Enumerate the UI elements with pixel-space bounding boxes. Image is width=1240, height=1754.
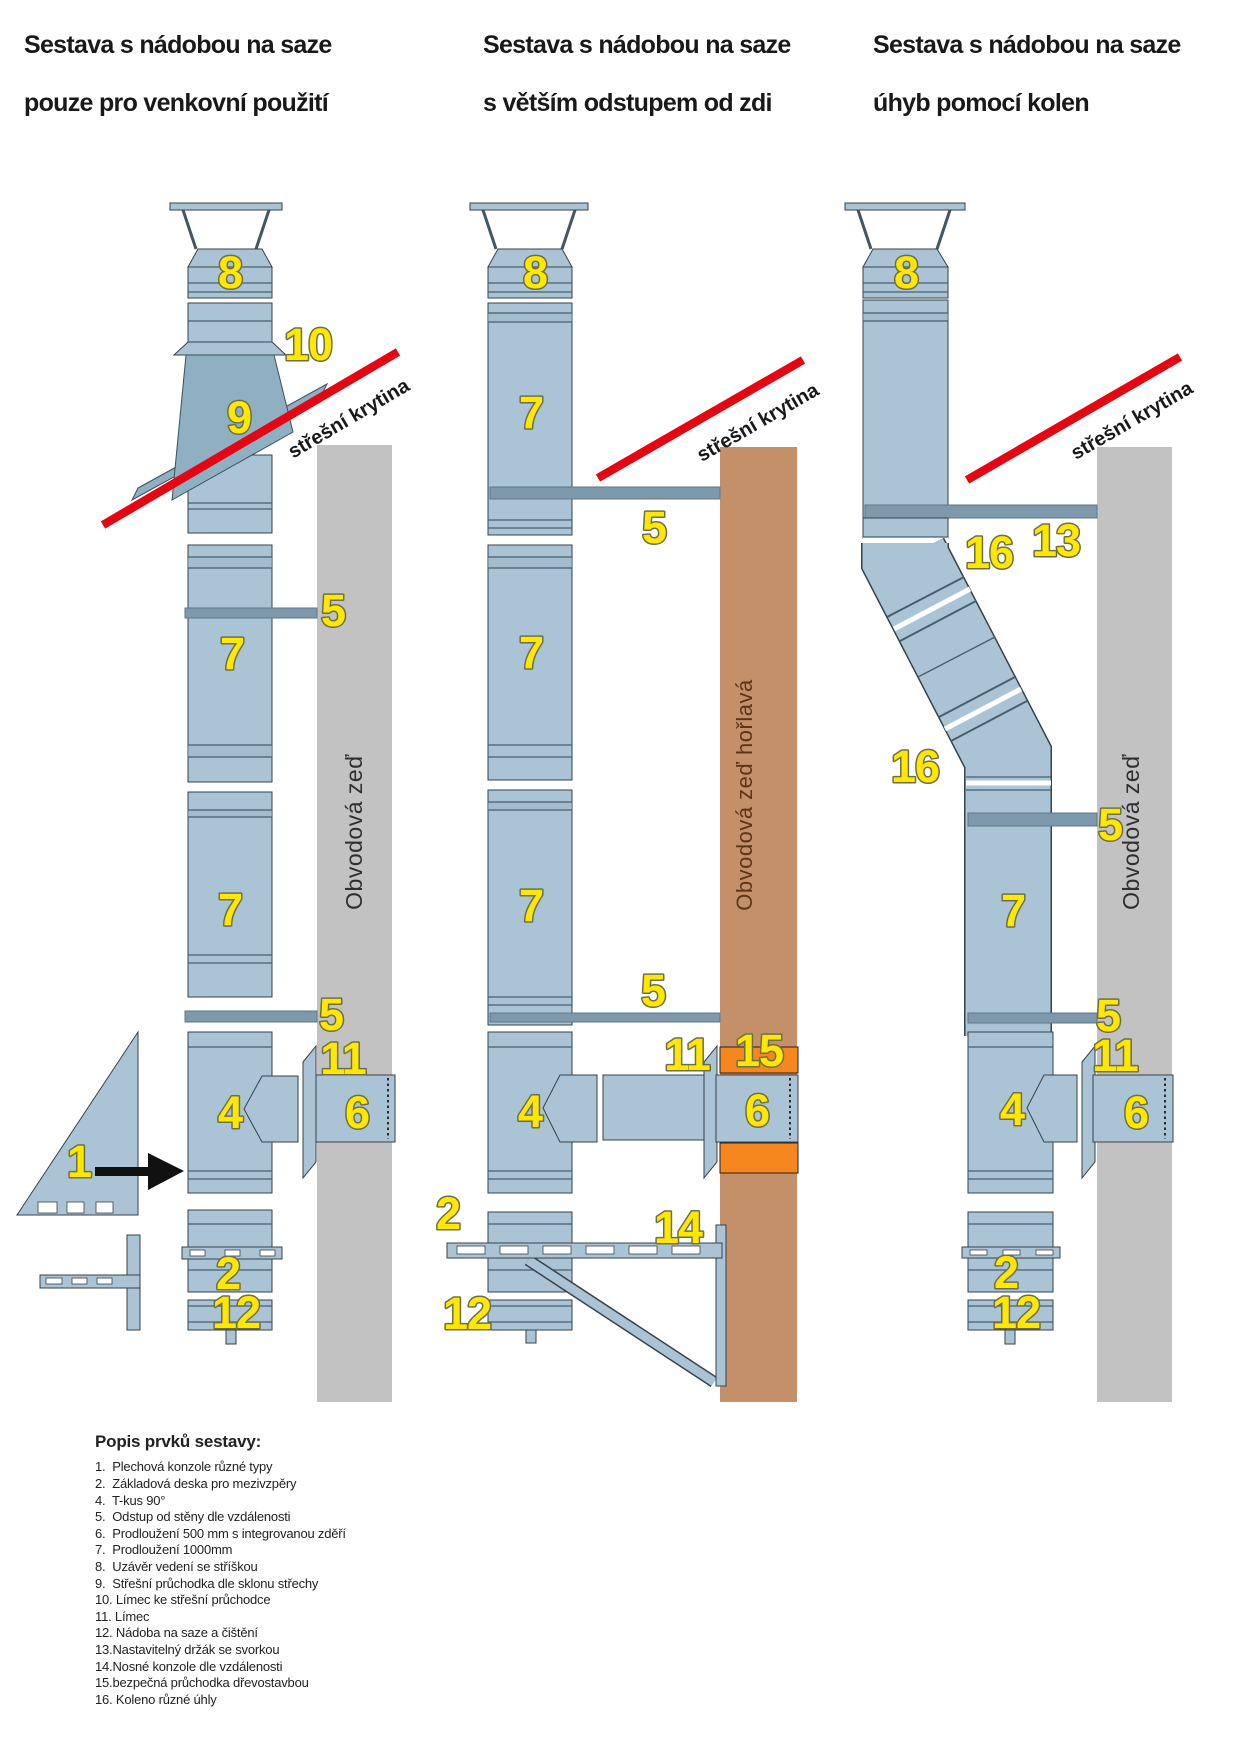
part-label-8: 8 bbox=[218, 247, 242, 298]
safe-passage-block bbox=[720, 1143, 798, 1173]
part-label-5: 5 bbox=[1098, 799, 1122, 850]
cap-leg bbox=[483, 210, 496, 249]
part-label-7: 7 bbox=[519, 880, 543, 931]
part-label-12: 12 bbox=[212, 1287, 260, 1338]
part-label-11: 11 bbox=[664, 1029, 710, 1080]
legend-item-2: 2. Základová deska pro mezivzpěry bbox=[95, 1476, 346, 1493]
part-label-5: 5 bbox=[641, 965, 665, 1016]
beam-slot bbox=[500, 1246, 528, 1254]
tee-piece bbox=[188, 1032, 298, 1193]
part-label-8: 8 bbox=[894, 247, 918, 298]
legend-item-14: 14.Nosné konzole dle vzdálenosti bbox=[95, 1659, 346, 1676]
joint-band bbox=[188, 810, 272, 817]
legend-item-11: 11. Límec bbox=[95, 1609, 346, 1626]
wall-label: Obvodová zeď bbox=[341, 754, 367, 910]
console-slot bbox=[67, 1202, 84, 1213]
flange-slot bbox=[260, 1250, 275, 1256]
part-label-7: 7 bbox=[519, 627, 543, 678]
console-slot bbox=[96, 1202, 113, 1213]
container-body bbox=[488, 1300, 572, 1330]
joint-band bbox=[488, 802, 572, 810]
part-label-11: 11 bbox=[1092, 1030, 1138, 1081]
part-label-12: 12 bbox=[443, 1288, 491, 1339]
legend-heading: Popis prvků sestavy: bbox=[95, 1432, 346, 1452]
pipe-stub bbox=[863, 518, 948, 538]
part-label-6: 6 bbox=[745, 1085, 769, 1136]
part-label-4: 4 bbox=[1000, 1084, 1025, 1135]
sheet-metal-console bbox=[17, 1032, 138, 1215]
legend-item-12: 12. Nádoba na saze a čištění bbox=[95, 1625, 346, 1642]
wall-collar bbox=[303, 1046, 316, 1178]
wall-middle-flammable: Obvodová zeď hořlavá bbox=[720, 447, 797, 1402]
part-label-10: 10 bbox=[284, 319, 332, 370]
part-label-7: 7 bbox=[218, 884, 242, 935]
wall-standoff-bracket bbox=[185, 1011, 317, 1022]
pipe-section bbox=[863, 300, 948, 518]
container-drain bbox=[526, 1330, 536, 1343]
part-label-14: 14 bbox=[654, 1202, 703, 1253]
part-label-7: 7 bbox=[220, 628, 244, 679]
console-slot bbox=[38, 1202, 57, 1213]
beam-slot bbox=[543, 1246, 571, 1254]
l-console bbox=[40, 1235, 140, 1330]
part-label-9: 9 bbox=[227, 392, 251, 443]
part-label-8: 8 bbox=[523, 247, 547, 298]
part-label-12: 12 bbox=[992, 1287, 1040, 1338]
wall-standoff-bracket bbox=[968, 1013, 1097, 1023]
part-label-5: 5 bbox=[321, 585, 345, 636]
console-triangle bbox=[17, 1032, 138, 1215]
console-slot bbox=[72, 1278, 87, 1284]
legend-item-4: 4. T-kus 90° bbox=[95, 1493, 346, 1510]
part-label-6: 6 bbox=[345, 1087, 369, 1138]
legend-item-6: 6. Prodloužení 500 mm s integrovanou zdě… bbox=[95, 1526, 346, 1543]
part-label-2: 2 bbox=[436, 1188, 460, 1239]
joint-band bbox=[188, 745, 272, 757]
beam-slot bbox=[586, 1246, 614, 1254]
cap-leg bbox=[183, 210, 196, 249]
part-label-1: 1 bbox=[67, 1136, 91, 1187]
legend-item-16: 16. Koleno různé úhly bbox=[95, 1692, 346, 1709]
joint-band bbox=[188, 557, 272, 568]
joint-band bbox=[488, 557, 572, 568]
wall-standoff-bracket-long bbox=[490, 1013, 720, 1022]
legend-item-9: 9. Střešní průchodka dle sklonu střechy bbox=[95, 1576, 346, 1593]
flange-slot bbox=[1036, 1250, 1053, 1255]
legend-item-15: 15.bezpečná průchodka dřevostavbou bbox=[95, 1675, 346, 1692]
legend-item-13: 13.Nastavitelný držák se svorkou bbox=[95, 1642, 346, 1659]
cap-leg bbox=[562, 210, 575, 249]
console-slot bbox=[46, 1278, 62, 1284]
legend: Popis prvků sestavy: 1. Plechová konzole… bbox=[95, 1432, 346, 1708]
diagram-page: Sestava s nádobou na saze pouze pro venk… bbox=[0, 0, 1240, 1754]
flange-slot bbox=[970, 1250, 987, 1255]
part-label-7: 7 bbox=[1001, 885, 1025, 936]
joint-band bbox=[488, 313, 572, 322]
part-label-16: 16 bbox=[891, 741, 939, 792]
part-label-5: 5 bbox=[642, 502, 666, 553]
part-label-7: 7 bbox=[519, 387, 543, 438]
pipe-section bbox=[188, 303, 272, 342]
legend-item-8: 8. Uzávěr vedení se stříškou bbox=[95, 1559, 346, 1576]
storm-collar bbox=[174, 342, 286, 355]
legend-item-7: 7. Prodloužení 1000mm bbox=[95, 1542, 346, 1559]
cap-leg bbox=[858, 210, 871, 249]
part-label-13: 13 bbox=[1032, 515, 1080, 566]
legend-item-5: 5. Odstup od stěny dle vzdálenosti bbox=[95, 1509, 346, 1526]
perimeter-wall-flammable bbox=[720, 447, 797, 1402]
cap-plate bbox=[170, 203, 282, 210]
cap-leg bbox=[937, 210, 950, 249]
cap-plate bbox=[470, 203, 588, 210]
part-label-15: 15 bbox=[735, 1025, 783, 1076]
part-label-4: 4 bbox=[518, 1086, 543, 1137]
beam-slot bbox=[457, 1246, 485, 1254]
part-label-4: 4 bbox=[218, 1087, 243, 1138]
cap-leg bbox=[256, 210, 269, 249]
part-label-16: 16 bbox=[965, 527, 1013, 578]
horizontal-pipe bbox=[603, 1075, 716, 1140]
soot-container bbox=[488, 1300, 572, 1343]
legend-item-10: 10. Límec ke střešní průchodce bbox=[95, 1592, 346, 1609]
flange-slot bbox=[190, 1250, 205, 1256]
wall-standoff-bracket bbox=[968, 813, 1097, 826]
beam-slot bbox=[629, 1246, 657, 1254]
joint-band bbox=[863, 313, 948, 321]
wall-right: Obvodová zeď bbox=[1097, 447, 1172, 1402]
cap-plate bbox=[845, 203, 965, 210]
wall-standoff-bracket-long bbox=[490, 487, 720, 499]
part-label-11: 11 bbox=[320, 1033, 366, 1084]
perimeter-wall bbox=[1097, 447, 1172, 1402]
part-label-6: 6 bbox=[1124, 1087, 1148, 1138]
wall-label: Obvodová zeď hořlavá bbox=[732, 679, 757, 911]
pipe-extension-1000 bbox=[863, 300, 948, 518]
legend-item-1: 1. Plechová konzole různé typy bbox=[95, 1459, 346, 1476]
console-slot bbox=[97, 1278, 112, 1284]
wall-standoff-bracket bbox=[185, 608, 317, 618]
